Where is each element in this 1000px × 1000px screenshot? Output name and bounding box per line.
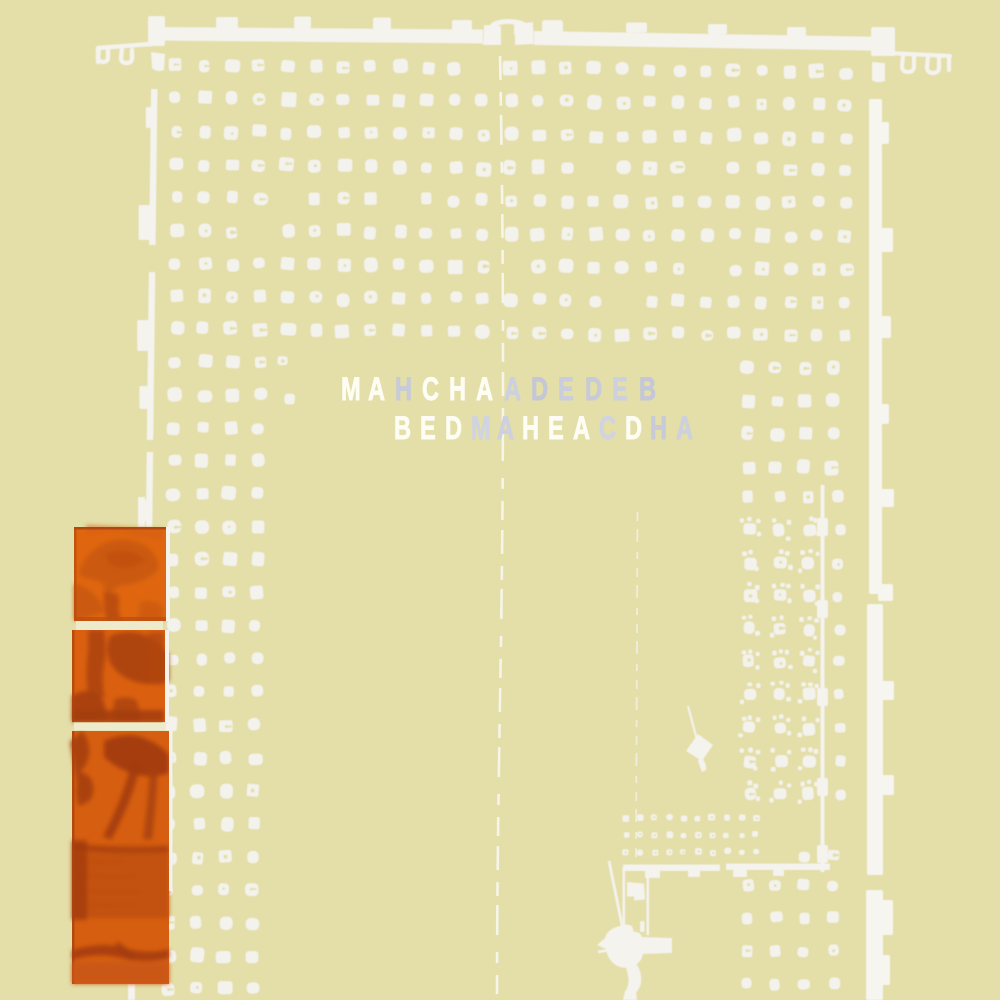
svg-text:A: A bbox=[573, 410, 590, 447]
svg-text:H: H bbox=[449, 371, 466, 408]
svg-text:A: A bbox=[476, 371, 493, 408]
svg-text:A: A bbox=[497, 410, 514, 447]
svg-text:H: H bbox=[395, 371, 412, 408]
svg-text:B: B bbox=[394, 410, 411, 447]
svg-text:B: B bbox=[639, 371, 656, 408]
svg-text:D: D bbox=[445, 410, 462, 447]
svg-text:M: M bbox=[471, 410, 491, 447]
svg-text:H: H bbox=[650, 410, 667, 447]
svg-text:M: M bbox=[341, 371, 361, 408]
svg-text:D: D bbox=[531, 371, 548, 408]
svg-text:E: E bbox=[548, 410, 564, 447]
svg-text:H: H bbox=[522, 410, 539, 447]
svg-text:E: E bbox=[612, 371, 628, 408]
svg-text:E: E bbox=[558, 371, 574, 408]
svg-text:D: D bbox=[625, 410, 642, 447]
svg-text:E: E bbox=[420, 410, 436, 447]
svg-text:A: A bbox=[368, 371, 385, 408]
svg-text:A: A bbox=[504, 371, 521, 408]
svg-text:C: C bbox=[422, 371, 439, 408]
svg-text:C: C bbox=[599, 410, 616, 447]
svg-text:A: A bbox=[676, 410, 693, 447]
svg-text:D: D bbox=[585, 371, 602, 408]
